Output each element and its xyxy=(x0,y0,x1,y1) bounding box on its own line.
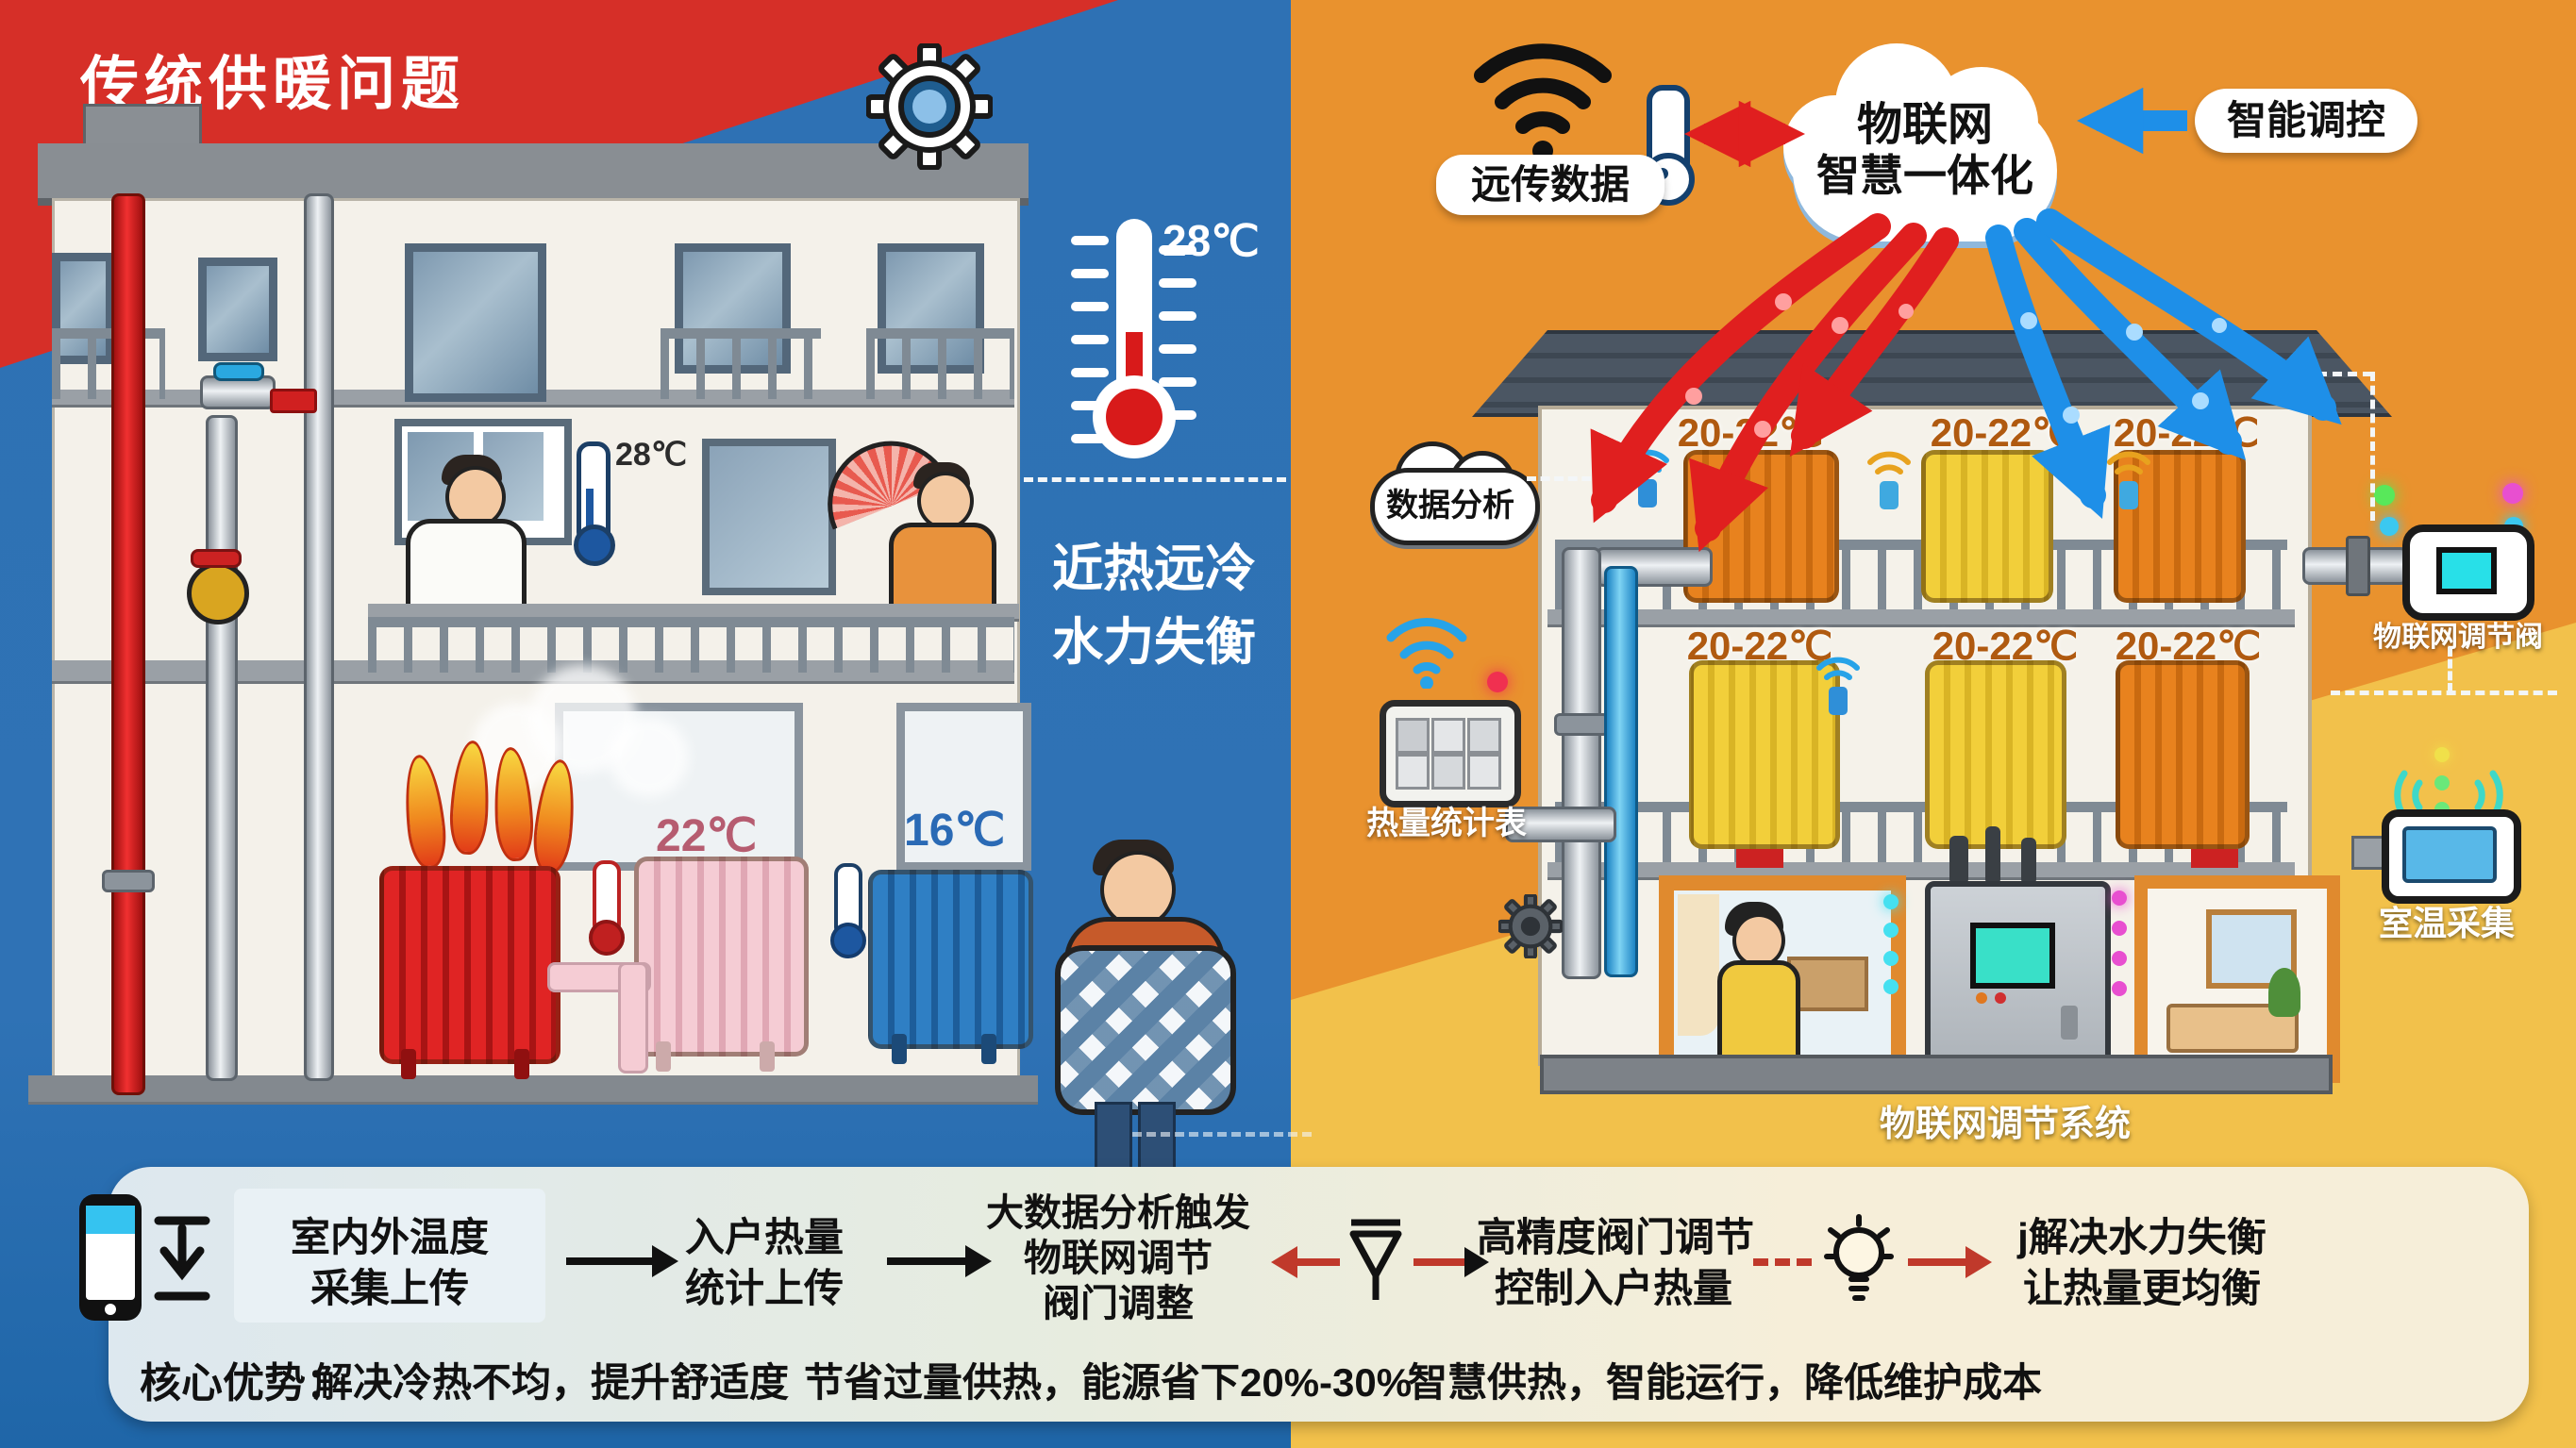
person-leg xyxy=(1095,1102,1132,1170)
radiator-leg xyxy=(401,1049,416,1079)
indoor-temp-label: 28℃ xyxy=(615,436,687,474)
window xyxy=(405,243,546,402)
door-ornament xyxy=(2191,849,2238,868)
plant xyxy=(2268,968,2300,1017)
machine-pipe xyxy=(2021,838,2036,885)
meter-cell xyxy=(1396,718,1430,754)
flow-step-3-line2: 物联网调节 xyxy=(981,1236,1255,1281)
flow-step-3: 大数据分析触发 物联网调节 阀门调整 xyxy=(981,1190,1255,1326)
valve-yellow-body xyxy=(187,562,249,624)
problem-slogan-line2: 水力失衡 xyxy=(1027,600,1281,674)
flow-step-3-line1: 大数据分析触发 xyxy=(981,1190,1255,1236)
wifi-icon xyxy=(1463,40,1632,162)
thermometer-bulb xyxy=(589,920,625,956)
left-building-base xyxy=(28,1075,1038,1102)
dashed-connector xyxy=(2331,691,2557,695)
led-indicator-magenta xyxy=(2502,483,2523,504)
flow-arrow-red xyxy=(1413,1258,1480,1266)
flow-arrow xyxy=(566,1257,668,1265)
led-indicator-cyan xyxy=(1883,894,1899,909)
flow-arrow-red xyxy=(1908,1258,1982,1266)
smoke xyxy=(609,717,689,797)
control-unit-slot xyxy=(2061,1006,2078,1040)
dashed-connector xyxy=(1527,476,1632,481)
valve-red-segment xyxy=(270,389,317,413)
flow-step-5: j解决水力失衡 让热量更均衡 xyxy=(2000,1212,2283,1314)
radiator-leg xyxy=(892,1034,907,1064)
flow-step-4-line2: 控制入户热量 xyxy=(1477,1263,1750,1314)
flow-step-5-line2: 让热量更均衡 xyxy=(2000,1263,2283,1314)
dashed-connector xyxy=(2302,372,2372,376)
divider-dashed-line xyxy=(1024,477,1286,482)
right-building-base xyxy=(1540,1055,2333,1094)
flow-step-2: 入户热量 统计上传 xyxy=(661,1212,868,1314)
pink-pipe xyxy=(618,962,648,1074)
led-indicator-blue xyxy=(2380,517,2399,536)
wifi-sensor-icon xyxy=(1863,445,1915,521)
flow-arrow-red-left xyxy=(1281,1258,1340,1266)
download-icon xyxy=(151,1213,213,1307)
radiator-cold xyxy=(868,870,1033,1049)
flow-step-1-line1: 室内外温度 xyxy=(236,1212,544,1263)
outdoor-thermometer-icon xyxy=(1116,219,1152,398)
control-unit xyxy=(1925,881,2111,1066)
flow-step-4-line1: 高精度阀门调节 xyxy=(1477,1212,1750,1263)
collector-screen xyxy=(2402,826,2497,883)
advantage-item: 解决冷热不均，提升舒适度 xyxy=(313,1351,789,1408)
advantage-item: 智慧供热，智能运行，降低维护成本 xyxy=(1408,1351,2042,1408)
radiator-leg xyxy=(981,1034,996,1064)
phone-screen-header xyxy=(86,1206,135,1234)
faucet-handle-blue xyxy=(213,362,264,381)
supply-pipe-red xyxy=(111,193,145,1095)
lightbulb-icon xyxy=(1819,1209,1899,1313)
valve-screen xyxy=(2436,547,2497,594)
smart-control-label: 智能调控 xyxy=(2195,89,2417,153)
dashed-connector xyxy=(2448,647,2452,692)
balcony-railing xyxy=(368,617,1014,673)
signal-dots xyxy=(2434,747,2450,762)
control-unit-screen xyxy=(1970,923,2055,989)
flow-step-2-line1: 入户热量 xyxy=(661,1212,868,1263)
radiator-smart xyxy=(1925,660,2066,849)
radiator-leg xyxy=(656,1041,671,1072)
iot-valve-label: 物联网调节阀 xyxy=(2340,613,2576,655)
room-temp-label: 20-22℃ xyxy=(1923,409,2083,456)
water-pipe-blue xyxy=(1604,566,1638,977)
phone-screen xyxy=(86,1206,135,1300)
thermometer-bulb xyxy=(1106,389,1163,445)
remote-data-label: 远传数据 xyxy=(1436,155,1664,215)
led-indicator-green xyxy=(2374,485,2395,506)
wifi-sensor-icon xyxy=(1812,651,1865,726)
dashed-connector xyxy=(1132,1132,1312,1137)
radiator-warm xyxy=(634,857,809,1057)
meter-cell xyxy=(1467,718,1501,754)
wifi-sensor-icon xyxy=(1621,443,1674,519)
thermometer-bulb xyxy=(574,524,615,566)
valve-red-handle xyxy=(191,549,242,568)
machine-pipe xyxy=(1949,836,1968,885)
room-temp-label-caption: 室温采集 xyxy=(2367,896,2527,945)
meter-cell xyxy=(1467,754,1501,790)
meter-cell xyxy=(1396,754,1430,790)
machine-pipe xyxy=(1985,826,2000,885)
room-temp-label: 20-22℃ xyxy=(1670,409,1831,456)
dashed-connector xyxy=(2370,372,2375,521)
radiator-temp-label: 22℃ xyxy=(656,809,757,862)
problem-slogan-line1: 近热远冷 xyxy=(1027,526,1281,601)
flow-step-1: 室内外温度 采集上传 xyxy=(236,1212,544,1314)
phone-home-button xyxy=(105,1304,116,1315)
heat-meter-device xyxy=(1380,700,1521,807)
woman-body xyxy=(1717,960,1800,1062)
advantage-item: 节省过量供热，能源省下20%-30% xyxy=(804,1351,1412,1408)
infographic-canvas: 传统供暖问题 28℃ 2 xyxy=(0,0,2576,1448)
radiator-overheated xyxy=(379,866,560,1064)
flow-step-1-line2: 采集上传 xyxy=(236,1263,544,1314)
flow-step-3-line3: 阀门调整 xyxy=(981,1281,1255,1326)
thermometer-bulb xyxy=(830,923,866,958)
radiator-smart xyxy=(1921,450,2053,603)
right-building-roof xyxy=(1472,330,2400,417)
window xyxy=(198,258,277,361)
meter-cell xyxy=(1431,718,1465,754)
radiator-smart xyxy=(2116,660,2250,849)
iot-system-label: 物联网调节系统 xyxy=(1864,1094,2147,1146)
led-indicator-red xyxy=(1487,672,1508,692)
gear-icon xyxy=(1498,894,1563,958)
flow-step-4: 高精度阀门调节 控制入户热量 xyxy=(1477,1212,1750,1314)
apartment-room xyxy=(2134,875,2340,1083)
radiator-temp-label: 16℃ xyxy=(904,804,1005,857)
balcony-railing xyxy=(866,328,1014,399)
pipe-collar xyxy=(102,870,155,892)
riser-pipe xyxy=(304,193,334,1081)
outdoor-temp-label: 28℃ xyxy=(1163,215,1260,266)
main-pipe xyxy=(1562,547,1601,979)
wifi-icon xyxy=(1380,611,1474,689)
flow-step-2-line2: 统计上传 xyxy=(661,1263,868,1314)
wifi-sensor-icon xyxy=(2102,445,2155,521)
valve-funnel-icon xyxy=(1346,1217,1406,1311)
riser-pipe xyxy=(206,415,238,1081)
heat-meter-label: 热量统计表 xyxy=(1347,797,1546,843)
meter-cell xyxy=(1431,754,1465,790)
gear-icon xyxy=(866,43,993,170)
checkered-blanket xyxy=(1055,945,1236,1115)
flow-step-5-line1: j解决水力失衡 xyxy=(2000,1212,2283,1263)
cloud-title-line2: 智慧一体化 xyxy=(1783,141,2066,204)
phone-icon xyxy=(79,1194,142,1321)
balcony-railing xyxy=(661,328,821,399)
radiator-leg xyxy=(514,1049,529,1079)
led-indicator xyxy=(1995,992,2006,1004)
balcony-railing xyxy=(52,328,165,399)
iot-valve-device xyxy=(2402,524,2534,621)
pipe-collar xyxy=(2346,536,2370,596)
radiator-leg xyxy=(760,1041,775,1072)
pipe-collar xyxy=(1554,713,1609,736)
door-ornament xyxy=(1736,849,1783,868)
person-hot-head xyxy=(917,472,974,530)
led-indicator-magenta xyxy=(2112,890,2127,906)
flow-arrow xyxy=(887,1257,981,1265)
data-analysis-label: 数据分析 xyxy=(1370,479,1531,525)
flow-arrow-red-dashed xyxy=(1753,1258,1812,1266)
led-indicator xyxy=(1976,992,1987,1004)
curtain xyxy=(1678,894,1719,1036)
thermometer-ticks-left xyxy=(1071,236,1109,245)
room-temp-collector xyxy=(2382,809,2521,904)
balcony-door xyxy=(702,439,836,595)
